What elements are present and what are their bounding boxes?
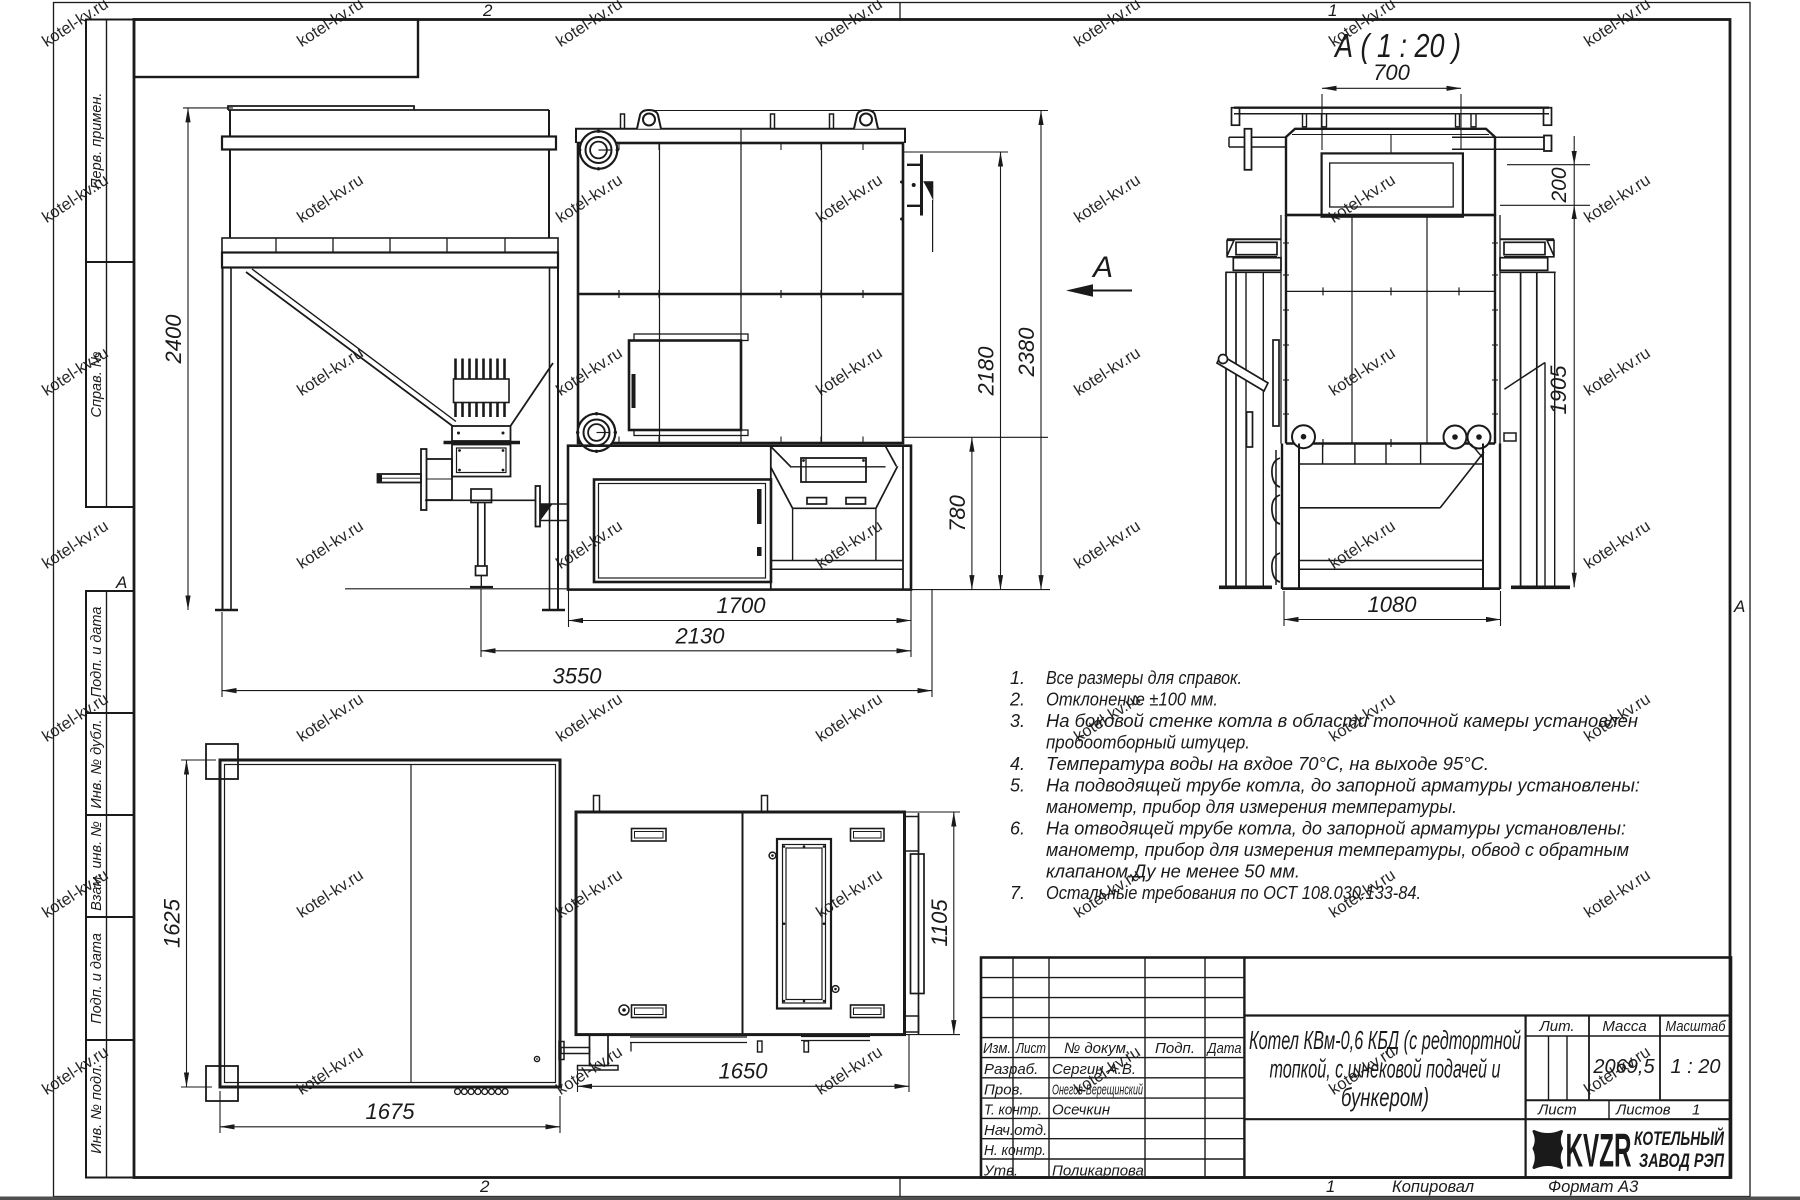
svg-text:Лист: Лист	[1537, 1102, 1577, 1119]
svg-text:2400: 2400	[161, 314, 186, 365]
svg-text:3550: 3550	[553, 664, 603, 689]
svg-text:А: А	[1091, 251, 1113, 284]
svg-text:1905: 1905	[1546, 365, 1571, 415]
svg-text:Изм.: Изм.	[983, 1040, 1011, 1057]
svg-text:Формат А3: Формат А3	[1548, 1178, 1639, 1196]
svg-text:2: 2	[482, 1, 493, 20]
svg-text:1675: 1675	[366, 1099, 416, 1124]
svg-text:Утв.: Утв.	[983, 1163, 1018, 1180]
svg-text:6.: 6.	[1010, 819, 1025, 839]
svg-text:Разраб.: Разраб.	[984, 1061, 1038, 1078]
svg-text:Подп. и дата: Подп. и дата	[89, 607, 105, 698]
svg-text:1: 1	[1328, 1, 1337, 20]
svg-text:1: 1	[1326, 1178, 1335, 1196]
svg-text:Лист: Лист	[1015, 1040, 1046, 1057]
svg-text:Подп. и дата: Подп. и дата	[89, 933, 105, 1024]
svg-text:Масштаб: Масштаб	[1666, 1018, 1726, 1035]
svg-text:бункером): бункером)	[1341, 1082, 1429, 1112]
svg-text:1: 1	[1692, 1102, 1700, 1119]
svg-text:клапаном.Ду не менее 50 мм.: клапаном.Ду не менее 50 мм.	[1046, 862, 1300, 882]
svg-text:Онегов-Верещинский: Онегов-Верещинский	[1052, 1081, 1143, 1098]
svg-text:Отклонение ±100 мм.: Отклонение ±100 мм.	[1046, 690, 1218, 710]
svg-text:700: 700	[1373, 60, 1410, 85]
svg-text:А: А	[115, 573, 127, 592]
svg-text:Инв. № дубл.: Инв. № дубл.	[89, 719, 105, 808]
svg-text:Все размеры для справок.: Все размеры для справок.	[1046, 668, 1242, 688]
svg-text:На боковой стенке котла в обла: На боковой стенке котла в области топочн…	[1046, 711, 1638, 731]
svg-text:манометр, прибор для измерения: манометр, прибор для измерения температу…	[1046, 797, 1457, 817]
svg-text:5.: 5.	[1010, 776, 1025, 796]
svg-text:1.: 1.	[1010, 668, 1025, 688]
svg-text:2380: 2380	[1014, 327, 1039, 378]
svg-text:Температура воды на вхдое 70°С: Температура воды на вхдое 70°С, на выход…	[1046, 754, 1489, 774]
svg-text:Н. контр.: Н. контр.	[984, 1142, 1046, 1159]
svg-text:1700: 1700	[717, 593, 767, 618]
svg-text:2.: 2.	[1009, 690, 1025, 710]
svg-text:№ докум.: № докум.	[1064, 1040, 1130, 1057]
svg-text:ЗАВОД РЭП: ЗАВОД РЭП	[1639, 1150, 1725, 1172]
svg-text:1625: 1625	[160, 898, 185, 948]
svg-text:3.: 3.	[1010, 711, 1025, 731]
svg-text:KVZR: KVZR	[1566, 1124, 1632, 1177]
svg-text:Остальные требования по ОСТ 10: Остальные требования по ОСТ 108.030.133-…	[1046, 883, 1421, 903]
svg-text:КОТЕЛЬНЫЙ: КОТЕЛЬНЫЙ	[1634, 1126, 1725, 1150]
svg-text:2180: 2180	[974, 346, 999, 397]
svg-text:Справ. №: Справ. №	[89, 351, 105, 417]
svg-text:А: А	[1733, 597, 1745, 616]
svg-text:4.: 4.	[1010, 754, 1025, 774]
svg-text:Пров.: Пров.	[984, 1081, 1024, 1098]
svg-text:Масса: Масса	[1602, 1018, 1646, 1035]
svg-text:1080: 1080	[1368, 592, 1418, 617]
svg-text:200: 200	[1548, 167, 1571, 203]
svg-text:пробоотборный штуцер.: пробоотборный штуцер.	[1046, 733, 1250, 753]
svg-text:780: 780	[945, 494, 970, 531]
svg-text:топкой, с шнековой подачей и: топкой, с шнековой подачей и	[1270, 1054, 1501, 1084]
svg-text:Осечкин: Осечкин	[1052, 1102, 1110, 1119]
svg-text:1105: 1105	[927, 899, 952, 947]
svg-text:Поликарпова: Поликарпова	[1052, 1163, 1144, 1180]
svg-text:Котел КВм-0,6 КБД (с редтортно: Котел КВм-0,6 КБД (с редтортной	[1249, 1025, 1521, 1055]
svg-text:2: 2	[479, 1177, 490, 1196]
svg-text:Лит.: Лит.	[1538, 1018, 1574, 1035]
svg-text:Листов: Листов	[1615, 1102, 1671, 1119]
svg-text:А ( 1 : 20 ): А ( 1 : 20 )	[1333, 27, 1461, 64]
svg-text:Взам. инв. №: Взам. инв. №	[89, 821, 105, 911]
svg-text:7.: 7.	[1010, 883, 1025, 903]
svg-text:Т. контр.: Т. контр.	[984, 1102, 1042, 1119]
svg-text:Нач.отд.: Нач.отд.	[984, 1122, 1047, 1139]
svg-text:2069,5: 2069,5	[1592, 1056, 1655, 1078]
svg-text:Инв. № подл.: Инв. № подл.	[89, 1064, 105, 1154]
svg-text:1 : 20: 1 : 20	[1670, 1056, 1720, 1078]
svg-text:Дата: Дата	[1206, 1040, 1242, 1057]
svg-text:На отводящей трубе котла, до з: На отводящей трубе котла, до запорной ар…	[1046, 819, 1626, 839]
svg-text:Подп.: Подп.	[1155, 1040, 1195, 1057]
svg-text:Сергин А.В.: Сергин А.В.	[1052, 1061, 1136, 1078]
svg-text:2130: 2130	[675, 624, 726, 649]
svg-text:манометр, прибор для измерения: манометр, прибор для измерения температу…	[1046, 840, 1629, 860]
svg-text:1650: 1650	[719, 1059, 769, 1084]
svg-text:На подводящей трубе котла, до: На подводящей трубе котла, до запорной а…	[1046, 776, 1640, 796]
svg-text:Копировал: Копировал	[1392, 1178, 1474, 1196]
svg-text:Перв. примен.: Перв. примен.	[89, 93, 105, 189]
